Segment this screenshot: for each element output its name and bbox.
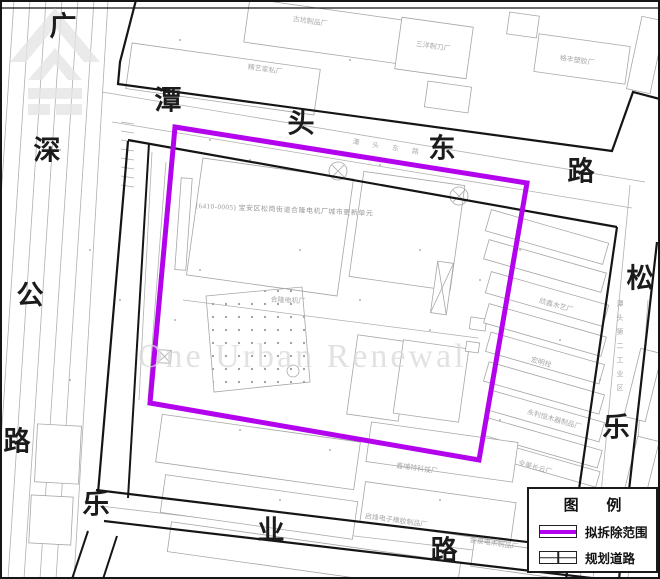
industrial-zone-label: 潭头第二工业区 [615, 300, 625, 398]
legend-item-planned-road: 规划道路 [539, 548, 656, 567]
legend-item-label: 规划道路 [585, 548, 635, 567]
road-name-songle: 松 [627, 266, 654, 293]
road-name-tantou: 东 [429, 136, 456, 163]
road-name-songle: 乐 [603, 415, 630, 442]
road-name-tantou: 潭 [155, 88, 182, 115]
road-name-guangshen: 深 [34, 138, 61, 165]
road-name-guangshen: 广 [50, 14, 77, 41]
guangshen-road-east-edge [98, 141, 128, 493]
legend-box: 图 例 拟拆除范围 规划道路 [527, 487, 658, 573]
watermark-text: One Urban Renewal [138, 338, 467, 376]
road-name-tantou: 头 [288, 111, 315, 138]
road-name-leye: 业 [258, 518, 285, 545]
block-west-edge [128, 143, 149, 498]
demolition-extent-symbol [539, 525, 577, 538]
road-name-guangshen: 公 [17, 283, 44, 310]
road-name-leye: 路 [431, 538, 458, 565]
planning-map-canvas: One Urban Renewal (6410-0005) 宝安区松岗街道合隆电… [0, 0, 660, 579]
road-name-guangshen: 路 [4, 429, 31, 456]
planned-road-symbol [539, 551, 577, 564]
road-name-leye: 乐 [83, 492, 110, 519]
legend-item-label: 拟拆除范围 [585, 522, 648, 541]
road-name-tantou: 路 [568, 159, 595, 186]
legend-title: 图 例 [529, 494, 656, 515]
legend-item-demolition: 拟拆除范围 [539, 522, 656, 541]
